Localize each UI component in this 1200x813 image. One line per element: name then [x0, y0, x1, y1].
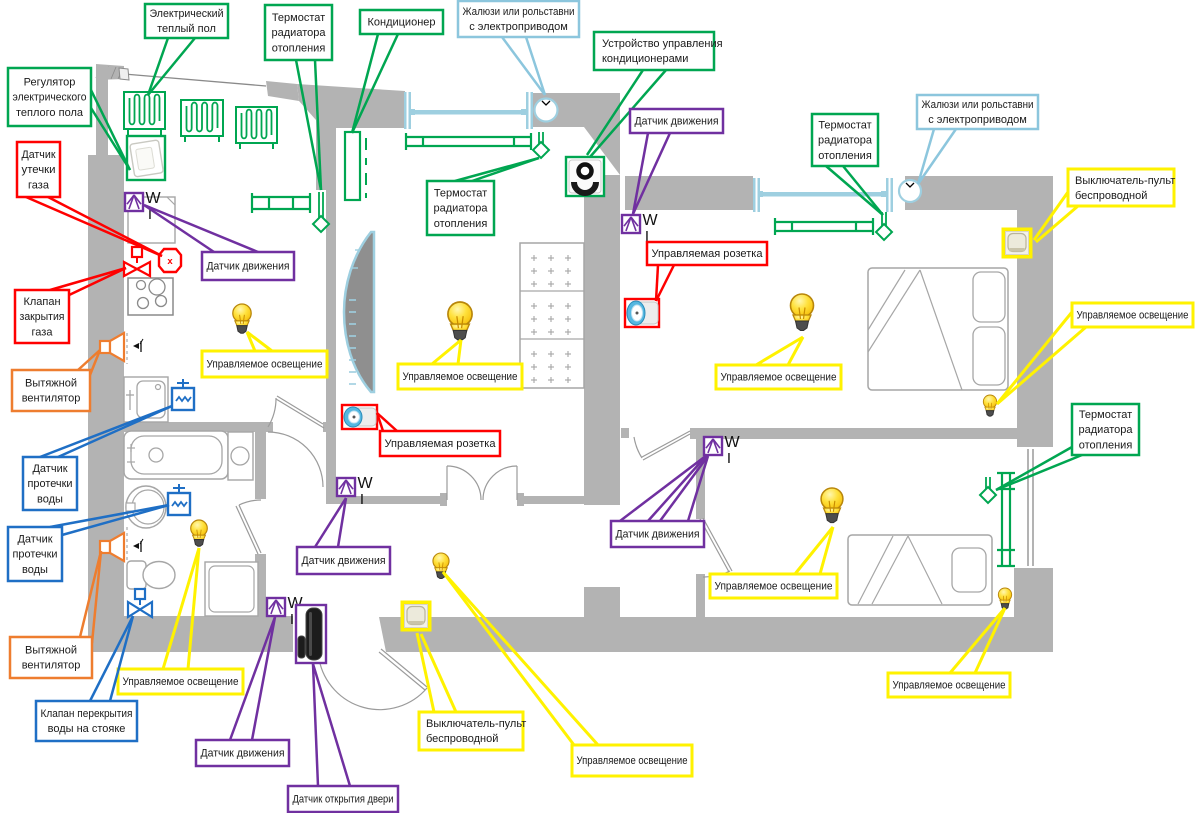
svg-text:Вытяжной: Вытяжной [25, 645, 77, 657]
svg-text:Управляемая розетка: Управляемая розетка [652, 248, 764, 260]
svg-text:протечки: протечки [13, 549, 58, 561]
svg-text:W: W [145, 190, 161, 207]
svg-text:отопления: отопления [272, 42, 326, 54]
svg-text:вентилятор: вентилятор [22, 393, 81, 405]
svg-text:отопления: отопления [1079, 439, 1133, 451]
svg-text:W: W [724, 434, 740, 451]
svg-text:теплого пола: теплого пола [16, 107, 84, 119]
svg-text:Регулятор: Регулятор [24, 76, 76, 88]
svg-text:теплый пол: теплый пол [157, 23, 216, 35]
svg-text:Термостат: Термостат [818, 119, 871, 131]
svg-text:Управляемое освещение: Управляемое освещение [577, 755, 688, 767]
svg-text:отопления: отопления [818, 150, 872, 162]
svg-text:Устройство управления: Устройство управления [602, 38, 723, 50]
svg-text:воды на стояке: воды на стояке [48, 723, 126, 735]
svg-text:газа: газа [32, 326, 54, 338]
svg-text:W: W [642, 212, 658, 229]
svg-text:Вытяжной: Вытяжной [25, 378, 77, 390]
svg-text:радиатора: радиатора [434, 203, 489, 215]
svg-text:Датчик движения: Датчик движения [635, 116, 719, 128]
svg-text:Управляемое освещение: Управляемое освещение [1077, 310, 1189, 322]
svg-text:кондиционерами: кондиционерами [602, 53, 688, 65]
svg-text:Датчик движения: Датчик движения [302, 555, 386, 567]
svg-text:Датчик: Датчик [17, 533, 52, 545]
svg-text:Клапан перекрытия: Клапан перекрытия [41, 708, 133, 720]
svg-text:Управляемая розетка: Управляемая розетка [385, 438, 497, 450]
svg-text:Датчик движения: Датчик движения [207, 261, 290, 273]
svg-text:радиатора: радиатора [272, 27, 327, 39]
svg-text:Управляемое освещение: Управляемое освещение [721, 372, 837, 384]
svg-text:Датчик: Датчик [22, 149, 56, 161]
svg-text:закрытия: закрытия [20, 311, 65, 323]
svg-text:Управляемое освещение: Управляемое освещение [207, 359, 323, 371]
svg-text:Жалюзи или рольставни: Жалюзи или рольставни [463, 6, 575, 18]
svg-text:Датчик движения: Датчик движения [616, 529, 700, 541]
svg-text:Электрический: Электрический [150, 8, 224, 20]
svg-text:воды: воды [22, 564, 48, 576]
svg-text:Управляемое освещение: Управляемое освещение [123, 676, 239, 688]
svg-text:газа: газа [28, 179, 50, 191]
svg-text:Жалюзи или рольставни: Жалюзи или рольставни [922, 99, 1034, 111]
svg-text:I: I [360, 491, 364, 508]
svg-text:Клапан: Клапан [23, 296, 60, 308]
svg-text:Термостат: Термостат [434, 187, 487, 199]
svg-text:беспроводной: беспроводной [1075, 190, 1147, 202]
svg-text:радиатора: радиатора [818, 135, 873, 147]
svg-text:Управляемое освещение: Управляемое освещение [715, 581, 833, 593]
svg-text:Выключатель-пульт: Выключатель-пульт [1075, 175, 1175, 187]
svg-text:отопления: отопления [434, 218, 488, 230]
svg-text:Датчик открытия двери: Датчик открытия двери [293, 794, 394, 806]
svg-text:W: W [357, 475, 373, 492]
svg-text:с электроприводом: с электроприводом [928, 114, 1027, 126]
svg-text:вентилятор: вентилятор [22, 660, 81, 672]
svg-text:Термостат: Термостат [1079, 409, 1132, 421]
svg-text:Выключатель-пульт: Выключатель-пульт [426, 718, 526, 730]
svg-text:Кондиционер: Кондиционер [367, 17, 435, 29]
svg-text:Управляемое освещение: Управляемое освещение [893, 680, 1006, 692]
svg-text:Управляемое освещение: Управляемое освещение [403, 371, 518, 383]
svg-text:с электроприводом: с электроприводом [469, 21, 568, 33]
svg-text:Датчик движения: Датчик движения [201, 748, 285, 760]
svg-text:x: x [167, 256, 173, 267]
svg-text:I: I [727, 450, 731, 467]
svg-text:утечки: утечки [22, 164, 56, 176]
svg-text:Датчик: Датчик [32, 463, 67, 475]
svg-text:Термостат: Термостат [272, 12, 325, 24]
svg-text:воды: воды [37, 493, 63, 505]
svg-text:электрического: электрического [13, 92, 87, 104]
svg-text:I: I [290, 611, 294, 628]
svg-text:радиатора: радиатора [1079, 424, 1134, 436]
svg-text:протечки: протечки [28, 478, 73, 490]
svg-text:беспроводной: беспроводной [426, 733, 498, 745]
